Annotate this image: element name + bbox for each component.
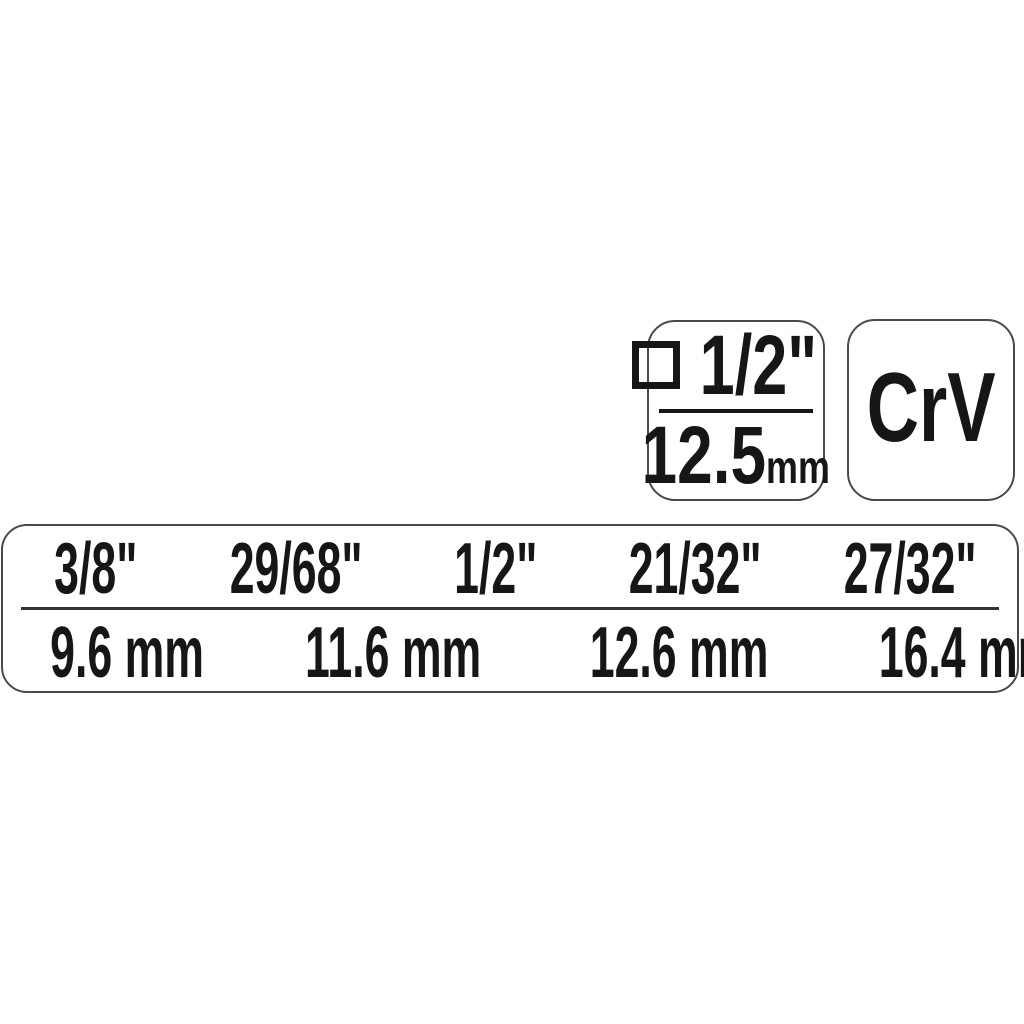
size-cell-inch: 1/2" (438, 529, 553, 605)
drive-size-top: 1/2" (649, 322, 823, 409)
size-cell-inch: 27/32" (843, 529, 976, 605)
size-cell-inch: 21/32" (629, 529, 762, 605)
material-label: CrV (867, 358, 996, 462)
size-cell-mm: 16.4 mm (878, 613, 1024, 689)
drive-size-mm: 12.5 mm (642, 415, 830, 497)
size-cell-inch: 29/68" (229, 529, 362, 605)
size-cell-inch: 3/8" (38, 529, 153, 605)
size-cell-mm: 12.6 mm (590, 613, 769, 689)
size-cell-mm: 11.6 mm (305, 613, 481, 689)
drive-size-badge: 1/2" 12.5 mm (647, 320, 825, 501)
mm-size-row: 9.6 mm 11.6 mm 12.6 mm 16.4 mm 21 mm (3, 610, 1017, 691)
inch-size-row: 3/8" 29/68" 1/2" 21/32" 27/32" (3, 526, 1017, 607)
drive-size-bottom: 12.5 mm (649, 413, 823, 500)
drive-size-mm-value: 12.5 (642, 415, 766, 497)
drive-size-mm-unit: mm (766, 444, 830, 490)
size-table-panel: 3/8" 29/68" 1/2" 21/32" 27/32" 9.6 mm 11… (1, 524, 1019, 693)
material-badge: CrV (847, 319, 1015, 501)
square-drive-icon (632, 341, 680, 389)
drive-size-inch: 1/2" (699, 323, 816, 407)
size-cell-mm: 9.6 mm (50, 613, 204, 689)
